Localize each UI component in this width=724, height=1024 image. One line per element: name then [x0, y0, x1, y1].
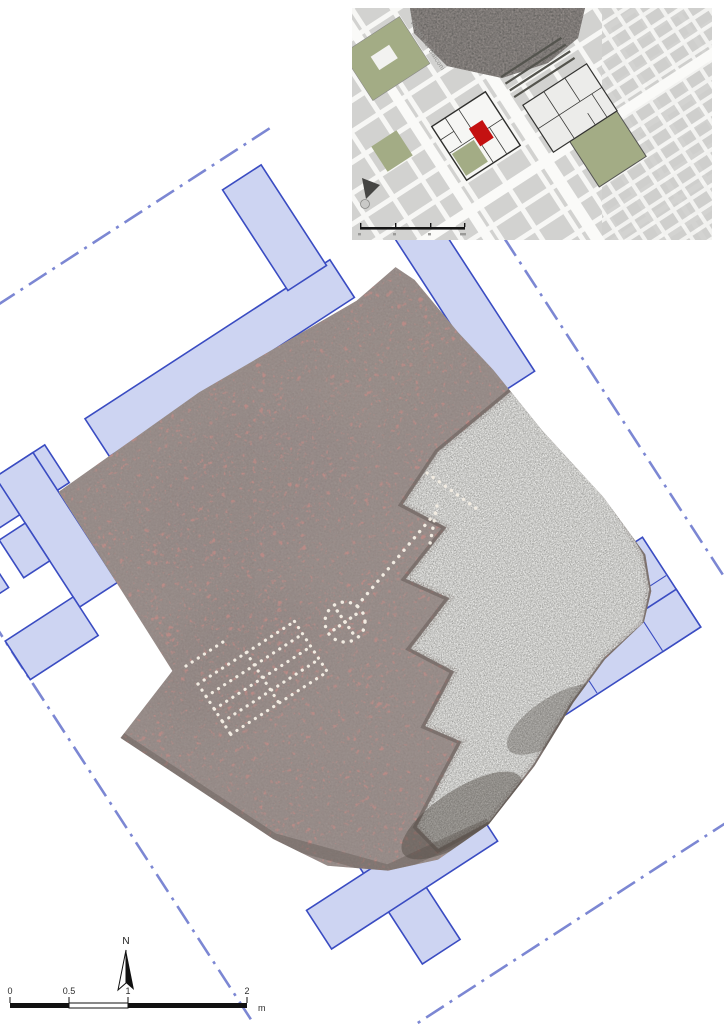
north-arrow: N	[118, 936, 134, 990]
scale-tick-0: 0	[7, 986, 12, 996]
north-label: N	[122, 936, 129, 947]
scale-tick-05: 0.5	[63, 986, 76, 996]
north-arrow-icon	[118, 950, 134, 990]
scale-tick-2: 2	[244, 986, 249, 996]
scale-unit: m	[258, 1003, 266, 1013]
inset-map-canvas: Vicolo dei Balconi	[352, 8, 712, 240]
wall-segment	[223, 165, 327, 291]
scale-bar: 0 0.5 1 2 m	[7, 986, 265, 1013]
inset-location-map: Vicolo dei Balconi	[352, 8, 712, 240]
wall-segment	[0, 550, 9, 605]
figure-page: { "inset_map": { "street_label": "Vicolo…	[0, 0, 724, 1024]
scale-tick-1: 1	[125, 986, 130, 996]
wall-segment	[5, 597, 98, 680]
